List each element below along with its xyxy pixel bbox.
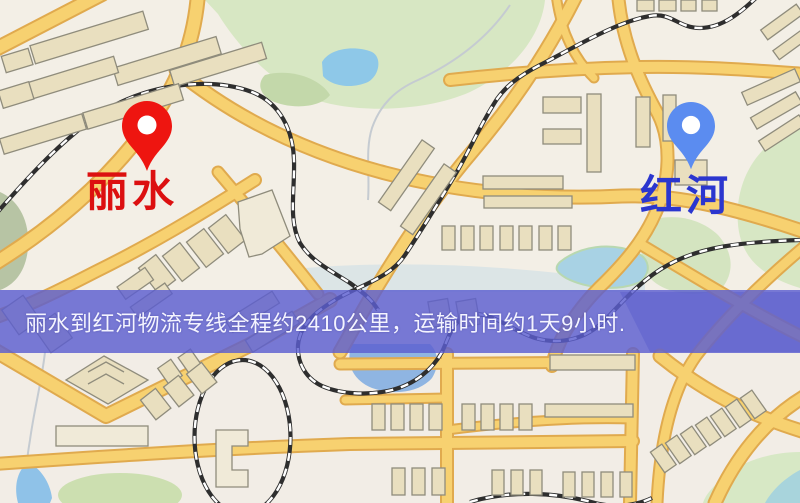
route-info-text: 丽水到红河物流专线全程约2410公里，运输时间约1天9小时.: [0, 306, 626, 338]
map-canvas[interactable]: [0, 0, 800, 503]
route-info-banner: 丽水到红河物流专线全程约2410公里，运输时间约1天9小时.: [0, 290, 800, 353]
map-screenshot: 丽水 红河 丽水到红河物流专线全程约2410公里，运输时间约1天9小时.: [0, 0, 800, 503]
origin-city-label: 丽水: [86, 172, 178, 214]
destination-city-label: 红河: [640, 176, 732, 218]
pin-hole: [682, 116, 700, 134]
pin-hole: [138, 116, 157, 135]
